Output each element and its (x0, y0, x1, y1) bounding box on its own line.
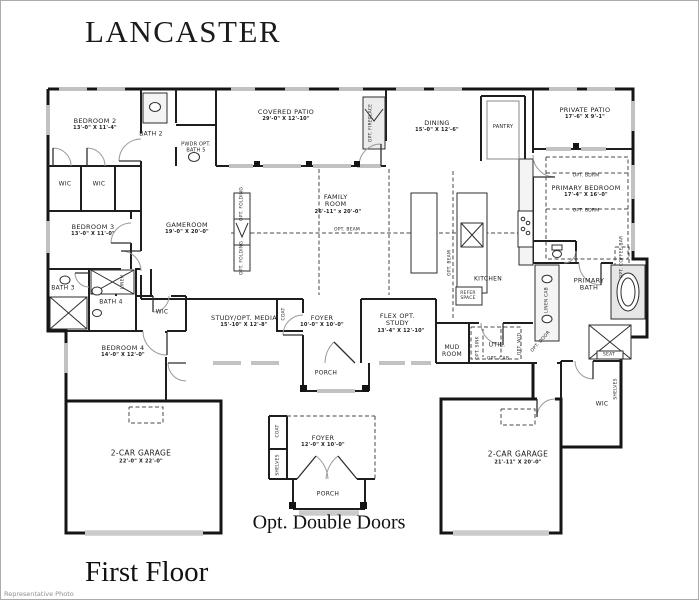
label-opt-wd: OPT. W/D (517, 333, 522, 355)
room-dims: 15'-10" X 12'-8" (211, 323, 277, 329)
room-label-pwdr-opt-bath5: PWDR OPT. BATH 5 (180, 142, 212, 154)
toilet (553, 251, 562, 258)
room-dims: 22'-0" X 22'-0" (111, 459, 171, 465)
room-label-mud-room: MUD ROOM (439, 345, 465, 359)
room-label-bath2: BATH 2 (138, 132, 164, 139)
label-inset-shelves: SHELVES (275, 454, 280, 475)
room-label-wic-2: WIC (93, 182, 106, 189)
room-dims: 13'-0" X 11'-0" (71, 232, 115, 238)
room-label-foyer: FOYER 10'-0" X 10'-0" (300, 315, 344, 329)
room-label-porch: PORCH (315, 371, 337, 378)
room-name: 2-CAR GARAGE (111, 449, 171, 458)
toilet (93, 310, 102, 317)
room-label-inset-porch: PORCH (317, 492, 339, 499)
room-dims: 17'-6" X 9'-1" (560, 115, 611, 121)
room-name: FOYER (301, 435, 345, 442)
room-label-family-room: FAMILY ROOM 26'-11" x 20'-0" (315, 194, 362, 216)
watermark: Representative Photo (4, 590, 74, 598)
room-name: GAMEROOM (165, 222, 209, 229)
room-label-pantry: PANTRY (493, 125, 513, 131)
room-label-garage-right: 2-CAR GARAGE 21'-11" X 20'-0" (488, 450, 548, 465)
room-dims: 26'-11" x 20'-0" (315, 210, 362, 216)
room-name: DINING (415, 120, 459, 127)
room-label-bedroom4: BEDROOM 4 14'-0" X 12'-0" (101, 345, 145, 359)
opt-fireplace-box (363, 97, 385, 149)
label-opt-bdrm-top: OPT. BDRM (573, 173, 600, 178)
sink (542, 275, 552, 283)
room-label-bath4: BATH 4 (99, 300, 123, 307)
room-dims: 13'-4" X 12'-10" (377, 329, 424, 335)
room-name: BEDROOM 4 (101, 345, 145, 352)
label-inset-coat: COAT (275, 425, 280, 438)
label-opt-bdrm-bottom: OPT. BDRM (573, 208, 600, 213)
room-name: PRIVATE PATIO (560, 107, 611, 114)
room-name: FAMILY ROOM (315, 194, 357, 209)
room-label-bath3: BATH 3 (51, 286, 75, 293)
room-name: PRIMARY BATH (569, 278, 609, 293)
room-label-flex: FLEX OPT. STUDY 13'-4" X 12'-10" (377, 313, 424, 335)
room-label-study: STUDY/OPT. MEDIA 15'-10" X 12'-8" (211, 315, 277, 329)
floor-plan-page: LANCASTER (0, 0, 699, 600)
room-dims: 19'-0" X 20'-0" (165, 230, 209, 236)
room-label-wic-primary: WIC (596, 402, 609, 409)
room-dims: 13'-0" X 11'-4" (73, 126, 117, 132)
room-label-util: UTIL. (489, 343, 506, 350)
room-label-primary-bath: PRIMARY BATH (569, 278, 609, 293)
sink (150, 103, 161, 112)
label-opt-coffee-bar: OPT. COFFEE BAR (619, 236, 624, 279)
room-name: FLEX OPT. STUDY (377, 313, 417, 328)
room-name: STUDY/OPT. MEDIA (211, 315, 277, 322)
label-opt-sink: OPT. SINK (475, 336, 480, 360)
room-name: BEDROOM 3 (71, 224, 115, 231)
sink (189, 153, 200, 162)
room-label-inset-foyer: FOYER 12'-0" X 10'-0" (301, 435, 345, 449)
room-name: PRIMARY BEDROOM (552, 185, 621, 192)
room-name: COVERED PATIO (258, 109, 314, 116)
label-opt-fireplace: OPT. FIREPLACE (368, 104, 373, 142)
room-dims: 14'-0" X 12'-0" (101, 353, 145, 359)
tub (617, 273, 639, 311)
room-label-covered-patio: COVERED PATIO 29'-0" X 12'-10" (258, 109, 314, 123)
floor-label: First Floor (85, 556, 208, 589)
kitchen-island (411, 193, 437, 273)
room-label-dining: DINING 15'-0" X 12'-6" (415, 120, 459, 134)
room-label-bedroom2: BEDROOM 2 13'-0" X 11'-4" (73, 118, 117, 132)
room-dims: 21'-11" X 20'-0" (488, 460, 548, 466)
room-dims: 29'-0" X 12'-10" (258, 117, 314, 123)
room-label-primary-bedroom: PRIMARY BEDROOM 17'-4" X 16'-0" (552, 185, 621, 199)
label-coat: COAT (281, 308, 286, 321)
sink (60, 276, 70, 284)
label-opt-folding-2: OPT. FOLDING (239, 241, 244, 275)
room-dims: 17'-4" X 16'-0" (552, 193, 621, 199)
room-label-garage-left: 2-CAR GARAGE 22'-0" X 22'-0" (111, 449, 171, 464)
sink (92, 287, 102, 295)
room-dims: 12'-0" X 10'-0" (301, 443, 345, 449)
label-shelves: SHELVES (613, 378, 618, 399)
room-name: 2-CAR GARAGE (488, 450, 548, 459)
room-label-linen: LINEN (120, 275, 125, 289)
room-label-gameroom: GAMEROOM 19'-0" X 20'-0" (165, 222, 209, 236)
room-dims: 15'-0" X 12'-6" (415, 128, 459, 134)
room-name: FOYER (300, 315, 344, 322)
room-label-wic-3: WIC (156, 310, 169, 317)
room-label-kitchen: KITCHEN (474, 277, 502, 284)
label-opt-beam-1: OPT. BEAM (334, 227, 360, 232)
room-label-private-patio: PRIVATE PATIO 17'-6" X 9'-1" (560, 107, 611, 121)
label-linen-cab: LINEN CAB (544, 287, 549, 313)
label-seat: SEAT (603, 352, 615, 357)
room-label-wic-1: WIC (59, 182, 72, 189)
room-name: BEDROOM 2 (73, 118, 117, 125)
sink (542, 315, 552, 323)
label-opt-folding-1: OPT. FOLDING (239, 187, 244, 221)
cooktop (518, 211, 533, 247)
label-opt-beam-2: OPT. BEAM (447, 250, 452, 276)
label-refer-space: REFER SPACE (458, 291, 478, 301)
room-dims: 10'-0" X 10'-0" (300, 323, 344, 329)
room-label-bedroom3: BEDROOM 3 13'-0" X 11'-0" (71, 224, 115, 238)
label-opt-cab: OPT. CAB (487, 356, 509, 361)
inset-caption: Opt. Double Doors (253, 512, 406, 535)
